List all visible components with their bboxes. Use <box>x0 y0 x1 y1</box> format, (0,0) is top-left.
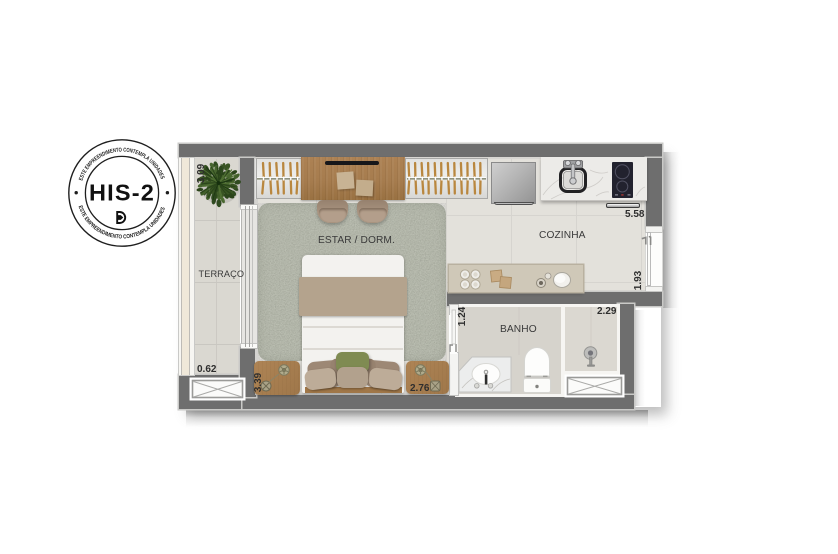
svg-text:HIS-2: HIS-2 <box>89 179 155 205</box>
